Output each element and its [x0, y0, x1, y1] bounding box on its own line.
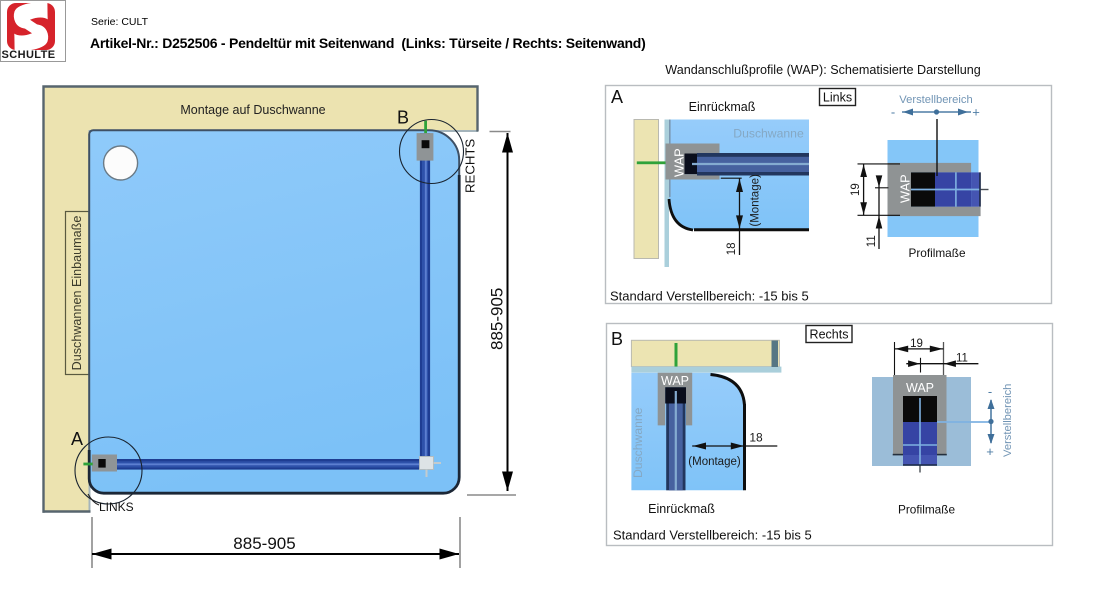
svg-text:-: - — [988, 384, 992, 399]
svg-text:11: 11 — [866, 235, 878, 247]
svg-text:Duschwanne: Duschwanne — [631, 407, 645, 478]
svg-text:Rechts: Rechts — [810, 328, 849, 342]
svg-text:A: A — [71, 429, 83, 449]
svg-text:Einrückmaß: Einrückmaß — [648, 502, 715, 516]
svg-text:Verstellbereich: Verstellbereich — [899, 94, 972, 106]
svg-text:11: 11 — [956, 353, 968, 365]
svg-text:LINKS: LINKS — [99, 500, 134, 514]
svg-text:Standard Verstellbereich: -15: Standard Verstellbereich: -15 bis 5 — [613, 528, 812, 543]
svg-text:WAP: WAP — [672, 148, 687, 177]
svg-text:Duschwanne: Duschwanne — [733, 127, 804, 141]
svg-text:WAP: WAP — [661, 374, 689, 388]
svg-text:Artikel-Nr.: D252506 - Pendelt: Artikel-Nr.: D252506 - Pendeltür mit Sei… — [90, 35, 646, 51]
svg-text:Links: Links — [823, 91, 852, 105]
svg-text:WAP: WAP — [898, 174, 913, 203]
svg-text:+: + — [972, 105, 980, 120]
svg-text:18: 18 — [726, 243, 738, 256]
svg-text:Wandanschlußprofile (WAP): Sch: Wandanschlußprofile (WAP): Schematisiert… — [665, 63, 980, 77]
svg-text:(Montage): (Montage) — [750, 174, 762, 227]
svg-text:Duschwannen Einbaumaße: Duschwannen Einbaumaße — [70, 216, 84, 371]
svg-text:Profilmaße: Profilmaße — [908, 246, 965, 260]
svg-text:(Montage): (Montage) — [688, 456, 741, 468]
svg-text:B: B — [397, 108, 409, 128]
svg-text:19: 19 — [850, 183, 862, 196]
svg-text:-: - — [891, 105, 895, 120]
svg-text:18: 18 — [749, 431, 763, 445]
svg-text:Standard Verstellbereich: -15: Standard Verstellbereich: -15 bis 5 — [610, 289, 809, 304]
svg-text:885-905: 885-905 — [233, 534, 295, 553]
svg-text:SCHULTE: SCHULTE — [2, 49, 56, 61]
svg-text:885-905: 885-905 — [488, 288, 507, 350]
svg-text:Einrückmaß: Einrückmaß — [689, 100, 756, 114]
svg-text:Verstellbereich: Verstellbereich — [1002, 384, 1014, 457]
svg-text:WAP: WAP — [906, 381, 934, 395]
svg-text:+: + — [986, 444, 994, 459]
svg-text:19: 19 — [910, 338, 923, 350]
svg-text:B: B — [611, 329, 623, 349]
svg-text:Profilmaße: Profilmaße — [898, 503, 955, 517]
svg-text:A: A — [611, 87, 623, 107]
svg-text:RECHTS: RECHTS — [463, 139, 478, 193]
svg-text:Serie: CULT: Serie: CULT — [91, 16, 149, 28]
svg-text:Montage auf Duschwanne: Montage auf Duschwanne — [180, 103, 325, 117]
